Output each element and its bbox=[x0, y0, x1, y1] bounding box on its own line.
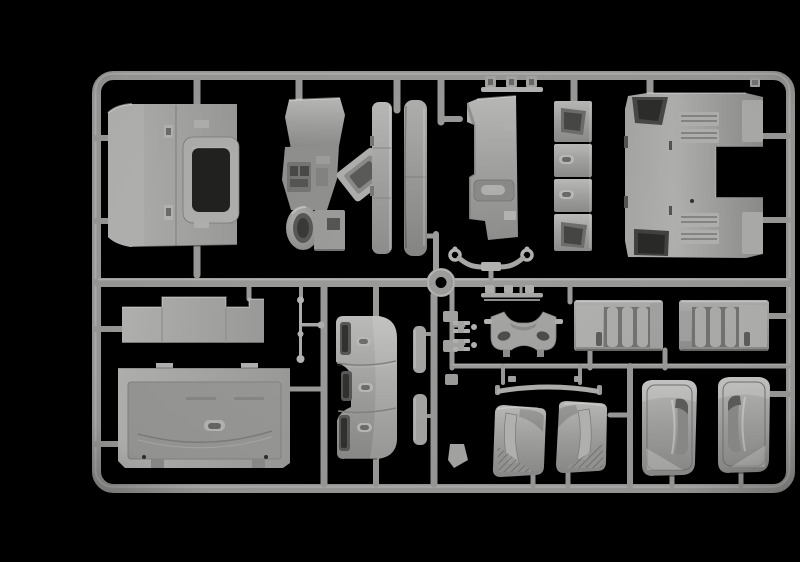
part-locker-door-stack bbox=[554, 101, 592, 251]
part-a-pillar-trim bbox=[370, 102, 392, 254]
part-cab-rear-window-panel bbox=[108, 104, 239, 247]
part-dashboard-assembly bbox=[282, 98, 345, 251]
part-cab-floor-panel bbox=[467, 96, 518, 240]
sprue-photo bbox=[40, 16, 800, 546]
part-small-clip bbox=[750, 78, 760, 87]
part-corner-deflector-left bbox=[493, 405, 546, 477]
part-clip-strip bbox=[481, 76, 543, 92]
part-step-box-right bbox=[679, 300, 769, 351]
part-side-deflector-left bbox=[642, 380, 697, 476]
part-side-deflector-right bbox=[718, 377, 770, 473]
part-cab-back-wall bbox=[118, 363, 290, 468]
part-entry-step-panel bbox=[336, 316, 397, 459]
part-step-box-left bbox=[574, 300, 663, 351]
part-door-trim-strip bbox=[404, 100, 427, 256]
part-corner-deflector-right bbox=[556, 401, 607, 473]
